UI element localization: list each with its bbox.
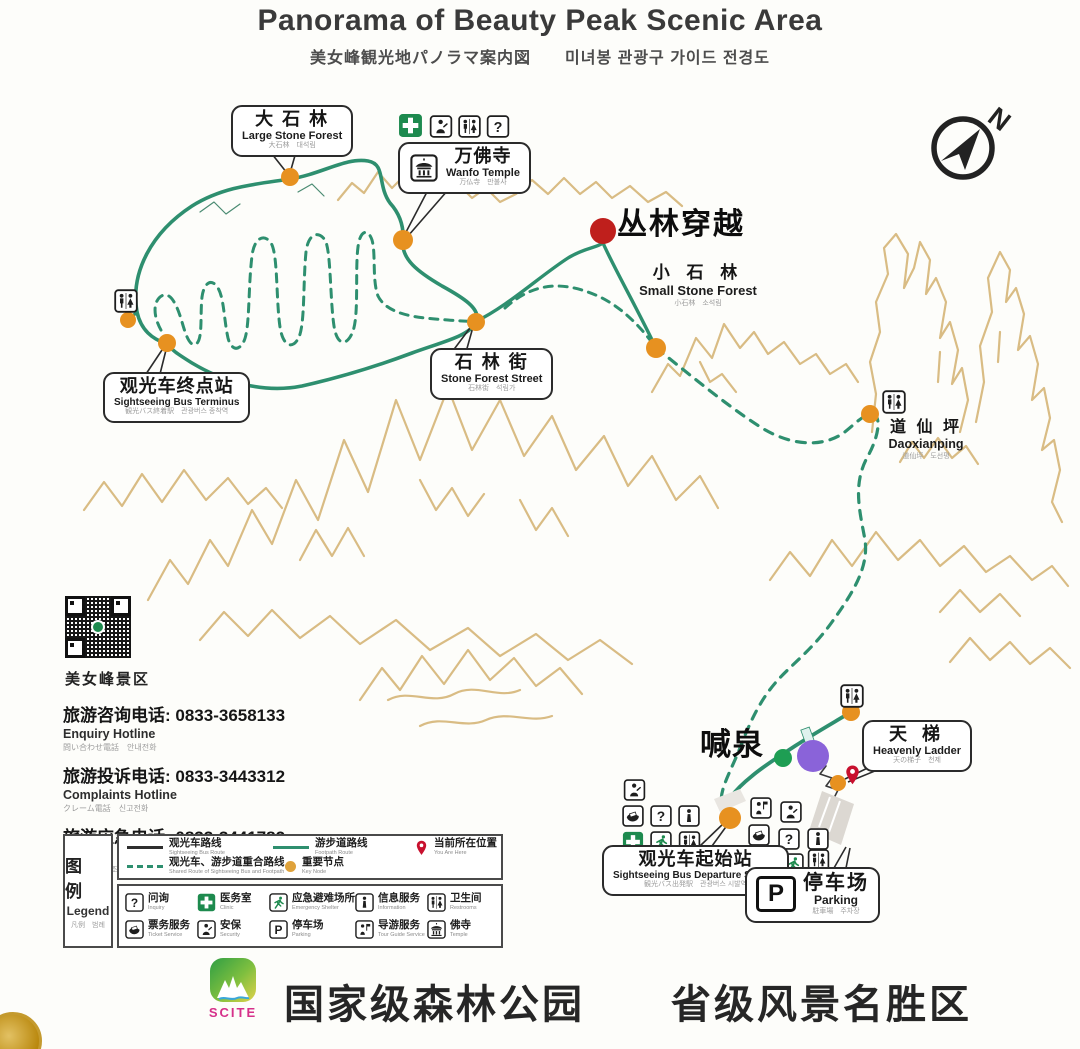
legend-route-footpath: 游步道路线 Footpath Route: [273, 838, 401, 857]
legend-icon-information: 信息服务 Information: [355, 889, 427, 916]
info-icon: [808, 829, 828, 849]
label-en: Wanfo Temple: [446, 167, 520, 180]
legend-icon-clinic: 医务室 Clinic: [197, 889, 269, 916]
toilet-icon: [841, 685, 863, 707]
toilet-icon: [115, 290, 137, 312]
legend-icon-emergency: 应急避难场所 Emergency Shelter: [269, 889, 355, 916]
node-stone-forest-street: [467, 313, 485, 331]
label-zh: 小 石 林: [628, 258, 768, 283]
legend-title: 图 例 Legend 凡例 범례: [63, 834, 113, 948]
label-zh: 道 仙 坪: [872, 413, 980, 437]
marker-jungle-crossing: [590, 218, 616, 244]
legend-body: 观光车路线 Sightseeing Bus Route 游步道路线 Footpa…: [117, 834, 503, 948]
label-sub: 万仏寺 만불사: [446, 179, 520, 188]
header: Panorama of Beauty Peak Scenic Area 美女峰観…: [0, 4, 1080, 68]
label-zh: 天 梯: [873, 725, 961, 745]
label-stone-forest-street: 石 林 街 Stone Forest Street 石林街 석림가: [430, 348, 553, 400]
label-en: Stone Forest Street: [441, 373, 542, 386]
qr-finder: [65, 596, 85, 616]
cliff-marks: [200, 184, 324, 214]
label-sub: 石林街 석림가: [441, 385, 542, 394]
label-small-stone-forest: 小 石 林 Small Stone Forest 小石林 소석림: [628, 258, 768, 308]
legend-title-sub: 凡例 범례: [71, 920, 105, 930]
question-icon: [125, 893, 144, 912]
legend-icon-parking: 停车场 Parking: [269, 916, 355, 943]
scite-badge-icon: [210, 958, 256, 1002]
label-sub: 小石林 소석림: [628, 298, 768, 308]
footer-slogan: 国家级森林公园 省级风景名胜区: [284, 972, 972, 1030]
security-icon: [431, 116, 452, 137]
label-en: Daoxianping: [872, 437, 980, 451]
label-en: Parking: [803, 894, 869, 908]
info-icon: [679, 806, 699, 826]
label-en: Small Stone Forest: [628, 283, 768, 298]
label-en: Large Stone Forest: [242, 130, 342, 143]
node-bus-departure: [719, 807, 741, 829]
legend-route-bus: 观光车路线 Sightseeing Bus Route: [127, 838, 273, 857]
marker-heavenly-ladder: [797, 740, 829, 772]
node-west-toilet: [120, 312, 136, 328]
legend: 图 例 Legend 凡例 범례 观光车路线 Sightseeing Bus R…: [63, 834, 503, 948]
legend-icon-temple: 佛寺 Temple: [427, 916, 499, 943]
label-large-stone-forest: 大 石 林 Large Stone Forest 大石林 대석림: [231, 105, 353, 157]
label-en: Heavenly Ladder: [873, 745, 961, 758]
label-sub: 道仙坪 도선평: [872, 451, 980, 461]
toilet-icon: [427, 893, 446, 912]
hotline-sub: クレーム電話 신고전화: [63, 803, 303, 814]
ticket-icon: [125, 920, 144, 939]
qr-code: [65, 596, 131, 658]
label-zh: 观光车终点站: [114, 377, 239, 397]
guide-icon: [355, 920, 374, 939]
security-icon: [625, 780, 645, 800]
poster: Panorama of Beauty Peak Scenic Area 美女峰観…: [0, 0, 1080, 1049]
node-large-stone-forest: [281, 168, 299, 186]
hotline-enquiry: 旅游咨询电话: 0833-3658133 Enquiry Hotline 問い合…: [63, 701, 303, 753]
info-icon: [355, 893, 374, 912]
pin-icon: [415, 840, 428, 856]
hotline-en: Enquiry Hotline: [63, 727, 303, 741]
mountain-logo-icon: [213, 970, 253, 1002]
hotline-complaints: 旅游投诉电话: 0833-3443312 Complaints Hotline …: [63, 762, 303, 814]
qr-caption: 美女峰景区: [65, 668, 303, 689]
label-bus-terminus: 观光车终点站 Sightseeing Bus Terminus 観光バス終着駅 …: [103, 372, 250, 423]
ticket-icon: [749, 825, 769, 845]
label-en: Sightseeing Bus Terminus: [114, 397, 239, 409]
legend-icon-ticket: 票务服务 Ticket Service: [125, 916, 197, 943]
label-daoxianping: 道 仙 坪 Daoxianping 道仙坪 도선평: [872, 413, 980, 461]
legend-title-zh: 图 例: [65, 852, 111, 902]
hotline-number: 旅游咨询电话: 0833-3658133: [63, 701, 303, 726]
question-icon: [651, 806, 671, 826]
qr-center-logo: [91, 620, 105, 634]
page-title: Panorama of Beauty Peak Scenic Area: [0, 4, 1080, 38]
label-sub: 天の梯子 천제: [873, 757, 961, 766]
legend-icons: 问询 Inquiry 医务室 Clinic 应急避难场所 Emergency S…: [117, 884, 503, 948]
marker-shouting-spring: [774, 749, 792, 767]
dashed-green-line-sample: [127, 865, 163, 868]
inner-trail-dashed: [155, 232, 475, 348]
temple-icon: [409, 154, 439, 182]
hotline-en: Complaints Hotline: [63, 788, 303, 802]
trail-to-red-dot: [475, 243, 603, 322]
legend-route-shared: 观光车、游步道重合路线 Shared Route of Sightseeing …: [127, 857, 273, 876]
node-ladder-base: [830, 775, 846, 791]
label-sub: 観光バス終着駅 관광버스 종착역: [114, 408, 239, 417]
legend-icon-guide: 导游服务 Tour Guide Service: [355, 916, 427, 943]
medical-icon: [197, 893, 216, 912]
label-jungle-crossing: 丛林穿越: [617, 199, 745, 243]
security-icon: [781, 802, 801, 822]
label-zh: 大 石 林: [242, 110, 342, 130]
toilet-icon: [883, 391, 905, 413]
node-bus-terminus: [158, 334, 176, 352]
question-icon: [488, 116, 509, 137]
label-shouting-spring: 喊泉: [700, 719, 764, 764]
medical-icon: [399, 114, 422, 137]
guide-icon: [751, 798, 771, 818]
legend-key-node: 重要节点 Key Node: [273, 857, 401, 876]
emergency-icon: [269, 893, 288, 912]
toilet-icon: [459, 116, 480, 137]
node-small-stone-forest: [646, 338, 666, 358]
legend-routes: 观光车路线 Sightseeing Bus Route 游步道路线 Footpa…: [117, 834, 503, 880]
security-icon: [197, 920, 216, 939]
orange-dot-sample: [285, 861, 296, 872]
legend-icon-security: 安保 Security: [197, 916, 269, 943]
temple-icon: [427, 920, 446, 939]
hotline-sub: 問い合わせ電話 안내전화: [63, 742, 303, 753]
solid-black-line-sample: [127, 846, 163, 849]
scite-wordmark: SCITE: [204, 1005, 262, 1020]
page-subtitle: 美女峰観光地パノラマ案内図 미녀봉 관광구 가이드 전경도: [0, 44, 1080, 68]
legend-you-are-here: 当前所在位置 You Are Here: [401, 838, 497, 857]
parking-icon: P: [756, 876, 796, 912]
compass-icon: N: [934, 101, 1016, 177]
legend-title-en: Legend: [67, 904, 110, 918]
solid-green-line-sample: [273, 846, 309, 849]
label-zh: 万佛寺: [446, 147, 520, 167]
scite-logo: SCITE: [204, 958, 262, 1020]
ticket-icon: [623, 806, 643, 826]
label-zh: 石 林 街: [441, 353, 542, 373]
parking-icon: [269, 920, 288, 939]
legend-icon-restrooms: 卫生间 Restrooms: [427, 889, 499, 916]
label-sub: 駐車場 주차장: [803, 908, 869, 917]
qr-finder: [65, 638, 85, 658]
label-parking: P 停车场 Parking 駐車場 주차장: [745, 867, 880, 923]
node-wanfo-temple: [393, 230, 413, 250]
hotline-number: 旅游投诉电话: 0833-3443312: [63, 762, 303, 787]
shared-trail-dashed-long: [656, 348, 878, 818]
label-wanfo-temple: 万佛寺 Wanfo Temple 万仏寺 만불사: [398, 142, 531, 194]
qr-finder: [111, 596, 131, 616]
label-sub: 大石林 대석림: [242, 142, 342, 151]
legend-icon-inquiry: 问询 Inquiry: [125, 889, 197, 916]
label-heavenly-ladder: 天 梯 Heavenly Ladder 天の梯子 천제: [862, 720, 972, 772]
label-zh: 停车场: [803, 872, 869, 894]
